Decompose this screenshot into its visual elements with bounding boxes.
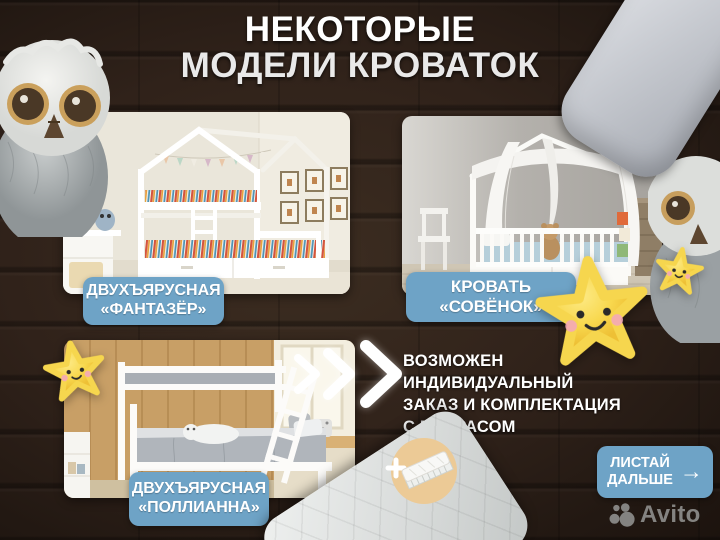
label-pollianna-line2: «ПОЛЛИАННА» [138,499,260,518]
cta-line-1: ЛИСТАЙ [607,455,673,472]
star-plush-big [517,247,668,377]
star-plush-left [31,333,119,410]
note-line-2: ИНДИВИДУАЛЬНЫЙ [403,372,621,394]
avito-brand-text: Avito [640,501,701,529]
label-pollianna-line1: ДВУХЪЯРУСНАЯ [132,480,266,499]
swipe-next-button[interactable]: ЛИСТАЙ ДАЛЬШЕ → [597,446,713,498]
promo-collage: НЕКОТОРЫЕ МОДЕЛИ КРОВАТОК [0,0,720,540]
mattress-medallion [382,434,460,506]
avito-logo-icon [608,502,636,529]
avito-watermark: Avito [608,501,701,529]
chevron-right-icons [288,336,408,412]
title-line-1: НЕКОТОРЫЕ [0,12,720,48]
label-fantazer-line1: ДВУХЪЯРУСНАЯ [86,282,220,301]
label-bed-fantazer: ДВУХЪЯРУСНАЯ «ФАНТАЗЁР» [83,277,224,325]
label-bed-pollianna: ДВУХЪЯРУСНАЯ «ПОЛЛИАННА» [129,472,269,526]
arrow-right-icon: → [680,460,703,483]
title-line-2: МОДЕЛИ КРОВАТОК [0,48,720,84]
page-title: НЕКОТОРЫЕ МОДЕЛИ КРОВАТОК [0,12,720,84]
cta-line-2: ДАЛЬШЕ [607,472,673,489]
label-fantazer-line2: «ФАНТАЗЁР» [101,301,207,320]
star-plush-small [648,242,709,300]
